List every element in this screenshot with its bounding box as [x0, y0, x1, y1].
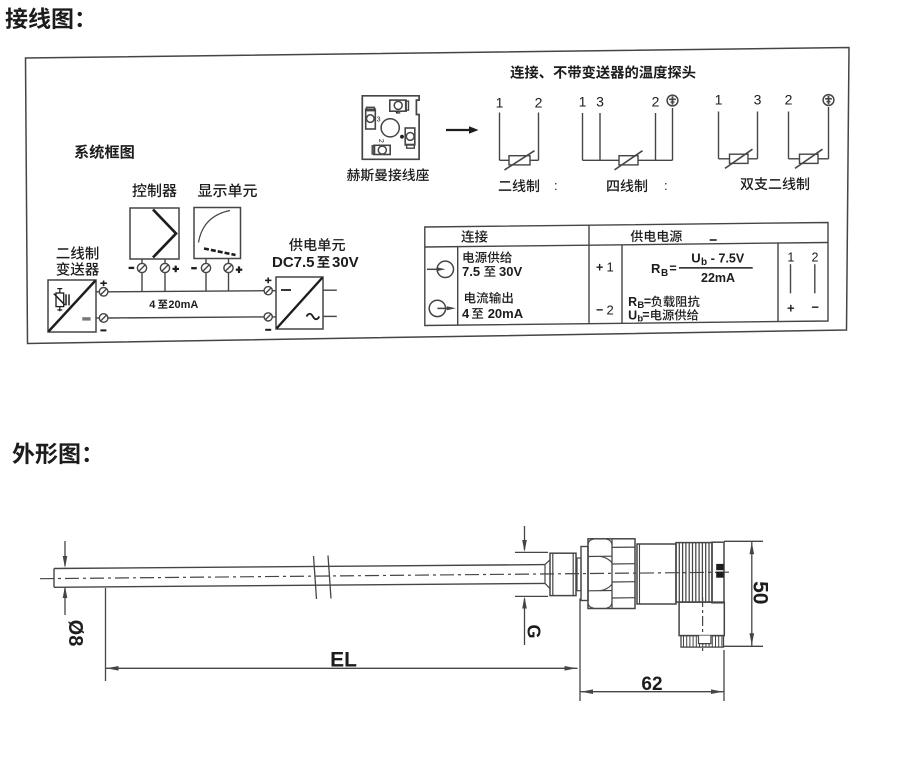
svg-text:7.5: 7.5	[462, 264, 480, 279]
svg-text:1: 1	[715, 92, 723, 108]
svg-text:2: 2	[785, 92, 793, 108]
svg-text:B: B	[661, 268, 668, 279]
svg-text:7.5V: 7.5V	[719, 252, 745, 266]
svg-text:2: 2	[535, 95, 543, 111]
svg-text:2: 2	[607, 303, 614, 318]
svg-text:R: R	[628, 295, 637, 309]
svg-text:=: =	[642, 308, 649, 322]
svg-text:3: 3	[754, 92, 762, 108]
svg-text:3: 3	[377, 117, 381, 124]
svg-text:20mA: 20mA	[488, 306, 524, 321]
svg-text:=: =	[669, 262, 676, 276]
svg-text:3: 3	[596, 94, 604, 110]
svg-text:4: 4	[149, 299, 156, 311]
svg-text:30V: 30V	[332, 254, 359, 271]
svg-text::: :	[664, 178, 668, 193]
svg-text:1: 1	[579, 94, 587, 110]
svg-text:2: 2	[652, 94, 660, 110]
svg-text:62: 62	[641, 674, 662, 695]
svg-text:-: -	[711, 251, 715, 266]
svg-text:+: +	[787, 301, 795, 316]
svg-text:=: =	[644, 295, 651, 309]
svg-text:2: 2	[812, 251, 819, 265]
svg-text:U: U	[691, 251, 700, 266]
svg-text:50: 50	[748, 581, 771, 604]
svg-text:1: 1	[787, 251, 794, 265]
svg-text:b: b	[701, 257, 707, 268]
svg-text:4: 4	[462, 306, 470, 321]
svg-text:+: +	[596, 261, 603, 275]
svg-text:−: −	[811, 300, 819, 315]
svg-text:22mA: 22mA	[701, 271, 735, 285]
svg-text:20mA: 20mA	[168, 299, 198, 311]
svg-text:30V: 30V	[499, 264, 522, 279]
svg-text:−: −	[596, 303, 603, 317]
svg-text::: :	[554, 178, 558, 193]
svg-text:DC7.5: DC7.5	[272, 254, 315, 271]
svg-text:G: G	[524, 624, 544, 638]
svg-text:2: 2	[377, 139, 384, 143]
svg-text:U: U	[628, 309, 637, 323]
svg-text:EL: EL	[330, 649, 357, 672]
svg-text:1: 1	[607, 260, 614, 275]
svg-text:1: 1	[496, 95, 504, 111]
svg-text:Ø8: Ø8	[64, 620, 86, 647]
svg-text:R: R	[651, 261, 661, 276]
